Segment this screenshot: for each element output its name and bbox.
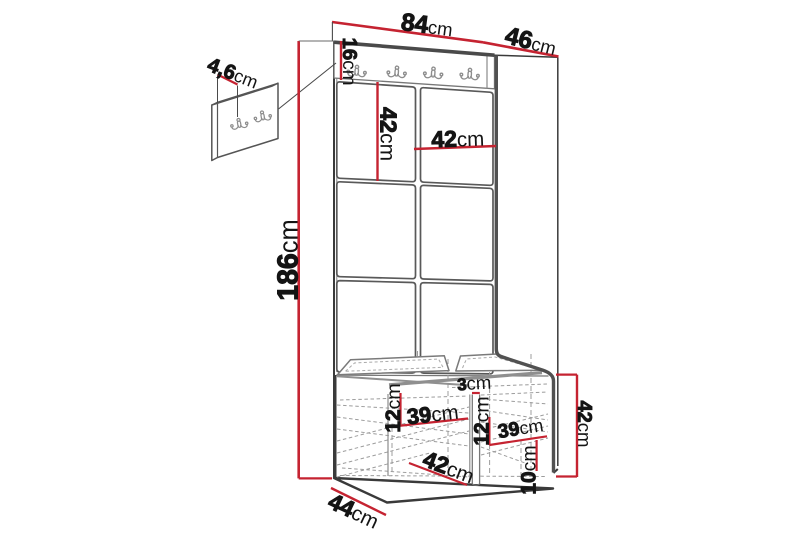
svg-text:16cm: 16cm [338, 37, 361, 85]
svg-text:42cm: 42cm [431, 125, 485, 153]
svg-text:12cm: 12cm [382, 383, 405, 432]
svg-text:186cm: 186cm [273, 219, 305, 301]
svg-text:42cm: 42cm [376, 107, 402, 161]
svg-text:12cm: 12cm [471, 396, 494, 445]
svg-text:10cm: 10cm [518, 445, 541, 494]
svg-text:42cm: 42cm [573, 401, 595, 448]
svg-text:3cm: 3cm [457, 372, 492, 395]
